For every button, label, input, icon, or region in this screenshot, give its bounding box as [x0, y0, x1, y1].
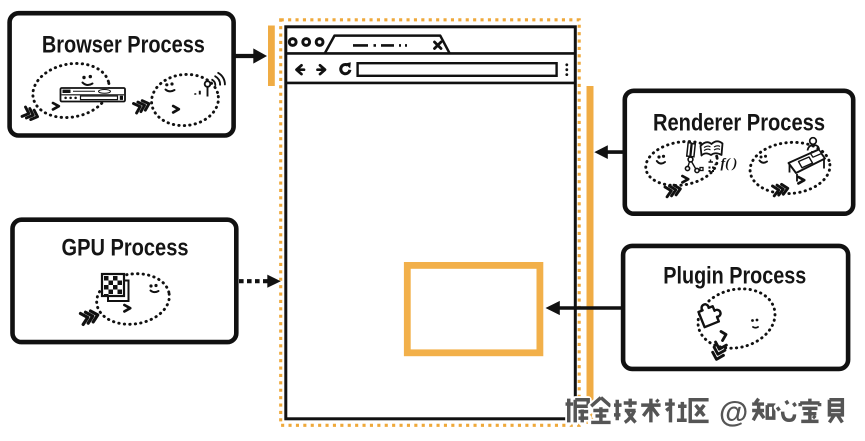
svg-text:Renderer Process: Renderer Process [653, 110, 825, 137]
svg-text:GPU Process: GPU Process [62, 235, 189, 262]
svg-text:Browser Process: Browser Process [42, 32, 205, 59]
svg-text:Plugin Process: Plugin Process [663, 263, 806, 290]
svg-text:f( ): f( ) [721, 157, 738, 172]
svg-text:@: @ [719, 396, 748, 429]
